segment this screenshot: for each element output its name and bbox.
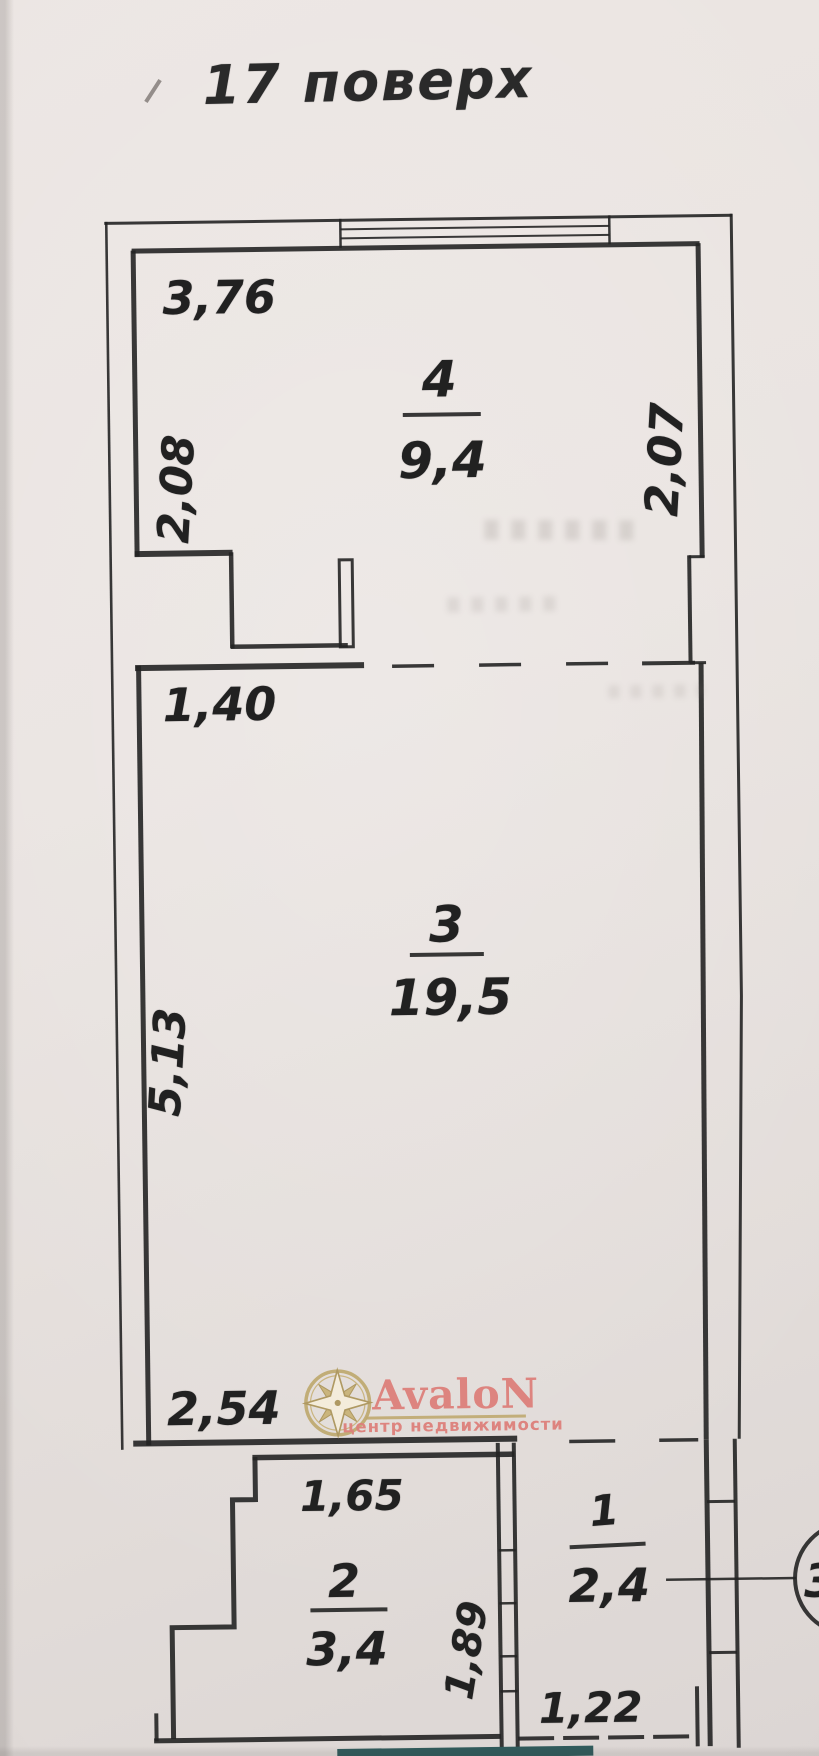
room2-wall-bottom [154,1736,501,1741]
room3-opening-solid [642,663,695,664]
wall-jog-vertical [689,555,690,663]
floor-plan-walls [0,0,819,1756]
dim-left-main-height: 5,13 [140,1007,197,1118]
room2-wall-top [252,1454,514,1457]
watermark-tagline: центр недвижимости [342,1415,564,1437]
room-2-area: 3,4 [306,1621,388,1676]
room-3-area: 19,5 [388,968,512,1028]
room2-room1-wall-left [498,1443,502,1749]
niche-wall-top [135,553,233,554]
paper-sheet: 17 поверх [0,0,819,1756]
dim-bottom-width: 2,54 [167,1381,281,1436]
room3-opening-dashed [392,663,638,666]
room-1-number: 1 [588,1485,621,1536]
room1-top-dashed [569,1440,698,1442]
room1-bottom-line [518,1736,697,1738]
floor-plan-photo: 17 поверх [0,0,819,1756]
room2-wall-left-steps [170,1457,259,1739]
room1-wall-right-outer [735,1439,739,1748]
inner-wall-right-upper [698,243,702,557]
watermark-brand: AvaloN [372,1369,540,1419]
inner-wall-left-upper [133,251,137,557]
room2-room1-wall-right [514,1443,518,1749]
inner-wall-top [132,244,700,251]
dim-opening-width: 1,40 [162,677,276,732]
window-line-inner [340,235,609,239]
dim-left-upper-height: 2,08 [148,433,205,544]
room-2-number: 2 [328,1554,361,1608]
inner-wall-right-middle [696,663,711,1439]
dim-room1-width: 1,22 [539,1683,643,1733]
room1-wall-right-inner [706,1439,710,1746]
floor-plan: 3,76 2,08 2,07 4 9,4 1,40 3 19,5 5,13 2,… [0,0,819,1756]
room3-wall-top [135,665,364,668]
room-4-number: 4 [422,350,458,408]
dim-right-upper-height: 2,07 [634,401,694,517]
callout-number: 3 [804,1553,819,1607]
outer-wall-right [723,214,747,1439]
niche-wall-bottom [231,645,348,647]
callout-leader-line [666,1578,796,1580]
outer-wall-left [106,222,122,1450]
dim-top-left-width: 3,76 [162,270,276,325]
window-line-outer [340,226,609,230]
room-1-area: 2,4 [568,1558,650,1613]
dim-room2-width: 1,65 [300,1471,404,1521]
room-3-number: 3 [429,895,465,953]
room1-bottom-jamb-right [697,1686,698,1746]
niche-wall-right [231,552,232,648]
duct-stub [339,560,353,647]
outer-wall-top [104,215,732,223]
room-4-area: 9,4 [398,431,487,490]
